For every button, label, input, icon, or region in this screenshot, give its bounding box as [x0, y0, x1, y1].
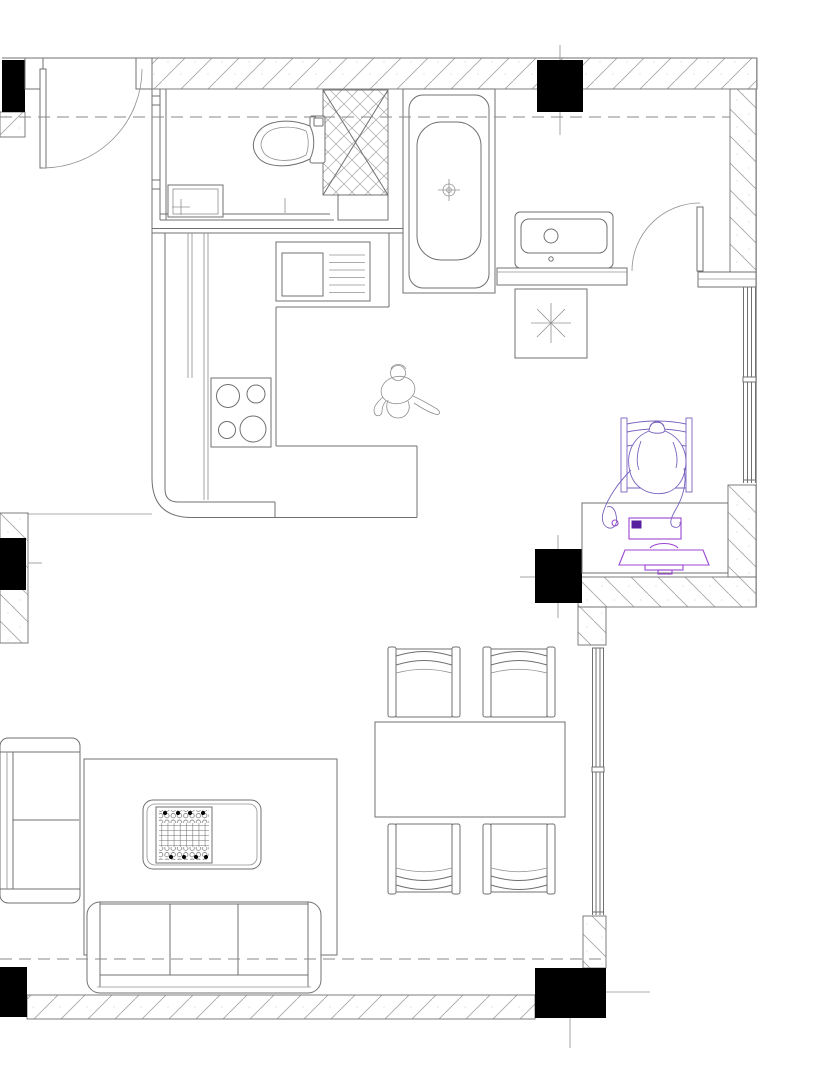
column-top-left: [2, 60, 25, 112]
column-bottom-left: [0, 967, 27, 1017]
window-right-upper: [743, 287, 756, 483]
living-room: [0, 738, 337, 993]
three-seat-sofa: [87, 902, 321, 993]
floor-plan-page: [0, 0, 828, 1087]
workspace: [582, 418, 728, 574]
entry-door-swing-arc: [43, 69, 142, 168]
dining-chair-bottom-left: [388, 824, 460, 894]
shaft: [323, 90, 388, 220]
dining-area: [375, 647, 565, 894]
workspace-bottom-wall: [578, 577, 756, 607]
hall: [497, 203, 703, 358]
wall-block-above-column: [583, 916, 606, 968]
wash-basin: [168, 185, 223, 217]
entry-door-leaf: [40, 69, 46, 168]
standing-person: [374, 365, 439, 419]
desk: [582, 503, 728, 573]
bathroom: [152, 89, 334, 220]
bottom-wall: [27, 995, 535, 1019]
column-workspace: [535, 549, 582, 603]
interior-door-swing-arc: [632, 203, 700, 271]
column-top-center: [537, 60, 583, 112]
wall-stub-below-workspace: [578, 607, 606, 645]
door-jamb-right: [136, 58, 152, 89]
left-top-wall-stub: [0, 112, 25, 137]
floor-plan-canvas: [0, 0, 828, 1087]
interior-door: [632, 203, 703, 271]
game-board: [156, 807, 212, 863]
vanity-counter: [497, 268, 627, 285]
cooktop: [211, 378, 271, 447]
two-seat-sofa: [0, 738, 80, 903]
dining-chair-top-right: [483, 647, 555, 717]
right-wall-lower: [728, 485, 756, 577]
window-right-lower: [592, 648, 604, 915]
dining-chair-top-left: [388, 647, 460, 717]
kitchen-sink: [276, 242, 370, 301]
coffee-table: [143, 800, 261, 869]
square-asterisk-symbol: [515, 289, 587, 358]
vanity-basin: [497, 212, 627, 285]
bathtub: [403, 89, 495, 293]
door-sill: [698, 272, 756, 287]
dining-chair-bottom-right: [483, 824, 555, 894]
top-wall: [152, 58, 757, 89]
toilet: [253, 116, 325, 166]
interior-door-leaf: [697, 207, 703, 271]
column-left-middle: [0, 538, 26, 590]
right-wall-upper: [730, 89, 756, 272]
entry-door: [25, 58, 152, 168]
shaft-niche: [338, 195, 388, 220]
dining-table: [375, 722, 565, 817]
column-bottom-right: [535, 968, 606, 1018]
